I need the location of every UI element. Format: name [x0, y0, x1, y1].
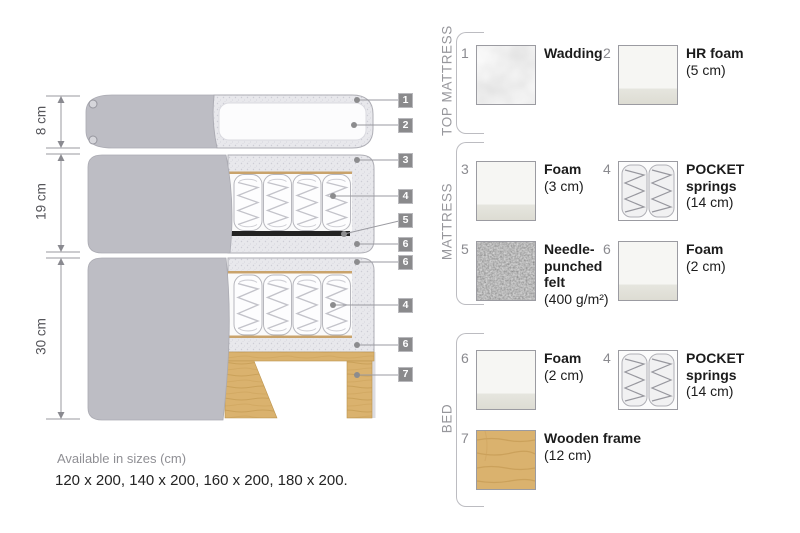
legend-item-number: 4 — [603, 350, 618, 366]
dimension-label-top-mattress: 8 cm — [34, 91, 49, 151]
legend-item-name: Foam — [544, 161, 610, 178]
layer-tag-6: 6 — [398, 237, 413, 252]
layer-tag-7: 7 — [398, 367, 413, 382]
section-title-top-mattress: TOP MATTRESS — [440, 21, 455, 141]
felt-texture-thumbnail — [476, 241, 536, 301]
layer-tag-6c: 6 — [398, 337, 413, 352]
layer-tag-5: 5 — [398, 213, 413, 228]
foam-block-thumbnail — [476, 350, 536, 410]
foam-block-thumbnail — [618, 45, 678, 105]
pocket-springs-image — [619, 351, 677, 409]
layer-tag-6b: 6 — [398, 255, 413, 270]
wood-texture-thumbnail — [476, 430, 536, 490]
legend-item-number: 6 — [603, 241, 618, 257]
legend-item-detail: (14 cm) — [686, 194, 752, 211]
legend-item-number: 4 — [603, 161, 618, 177]
legend-item-name: HR foam — [686, 45, 752, 62]
legend-item-needle-punched-felt: 5 Needle-punched felt (400 g/m²) — [461, 241, 610, 307]
legend-item-hr-foam: 2 HR foam (5 cm) — [603, 45, 752, 105]
wadding-texture-image — [477, 46, 535, 104]
foam-block-thumbnail — [618, 241, 678, 301]
legend-item-detail: (2 cm) — [686, 258, 752, 275]
legend-item-number: 6 — [461, 350, 476, 366]
layer-tag-1: 1 — [398, 93, 413, 108]
legend-item-foam-2cm-bed: 6 Foam (2 cm) — [461, 350, 610, 410]
legend-item-name: Foam — [544, 350, 610, 367]
available-sizes-label: Available in sizes (cm) — [57, 451, 186, 466]
section-title-bed: BED — [440, 359, 455, 479]
legend-item-foam-2cm: 6 Foam (2 cm) — [603, 241, 752, 301]
legend-item-detail: (2 cm) — [544, 367, 610, 384]
legend-item-detail: (5 cm) — [686, 62, 752, 79]
pocket-springs-thumbnail — [618, 161, 678, 221]
pocket-springs-image — [619, 162, 677, 220]
legend-item-detail: (14 cm) — [686, 383, 752, 400]
layer-tag-3: 3 — [398, 153, 413, 168]
legend-item-pocket-springs: 4 POCKET springs (14 cm) — [603, 161, 752, 221]
legend-item-name: POCKET springs — [686, 161, 752, 194]
legend-item-number: 3 — [461, 161, 476, 177]
bed-construction-infographic: 8 cm 19 cm 30 cm 1 2 3 4 5 6 6 4 6 7 TOP… — [0, 0, 800, 533]
legend-item-detail: (3 cm) — [544, 178, 610, 195]
legend-item-detail: (12 cm) — [544, 447, 694, 464]
legend-item-name: Needle-punched felt — [544, 241, 610, 291]
wood-texture-image — [477, 431, 535, 489]
pocket-springs-thumbnail — [618, 350, 678, 410]
dimension-label-mattress: 19 cm — [34, 172, 49, 232]
foam-block-thumbnail — [476, 161, 536, 221]
legend-item-wooden-frame: 7 Wooden frame (12 cm) — [461, 430, 694, 490]
legend-item-number: 7 — [461, 430, 476, 446]
legend-item-number: 1 — [461, 45, 476, 61]
legend-item-foam-3cm: 3 Foam (3 cm) — [461, 161, 610, 221]
legend-item-number: 2 — [603, 45, 618, 61]
legend-item-wadding: 1 Wadding — [461, 45, 610, 105]
section-title-mattress: MATTRESS — [440, 162, 455, 282]
available-sizes-value: 120 x 200, 140 x 200, 160 x 200, 180 x 2… — [55, 472, 348, 489]
legend-item-detail: (400 g/m²) — [544, 291, 610, 308]
layer-tag-4b: 4 — [398, 298, 413, 313]
legend-item-name: Wadding — [544, 45, 610, 62]
legend-item-number: 5 — [461, 241, 476, 257]
legend-item-pocket-springs-bed: 4 POCKET springs (14 cm) — [603, 350, 752, 410]
legend-item-name: Foam — [686, 241, 752, 258]
layer-tag-2: 2 — [398, 118, 413, 133]
layer-tag-4: 4 — [398, 189, 413, 204]
wadding-texture-thumbnail — [476, 45, 536, 105]
legend-item-name: POCKET springs — [686, 350, 752, 383]
felt-texture-image — [477, 242, 535, 300]
legend-item-name: Wooden frame — [544, 430, 694, 447]
dimension-label-bed: 30 cm — [34, 307, 49, 367]
